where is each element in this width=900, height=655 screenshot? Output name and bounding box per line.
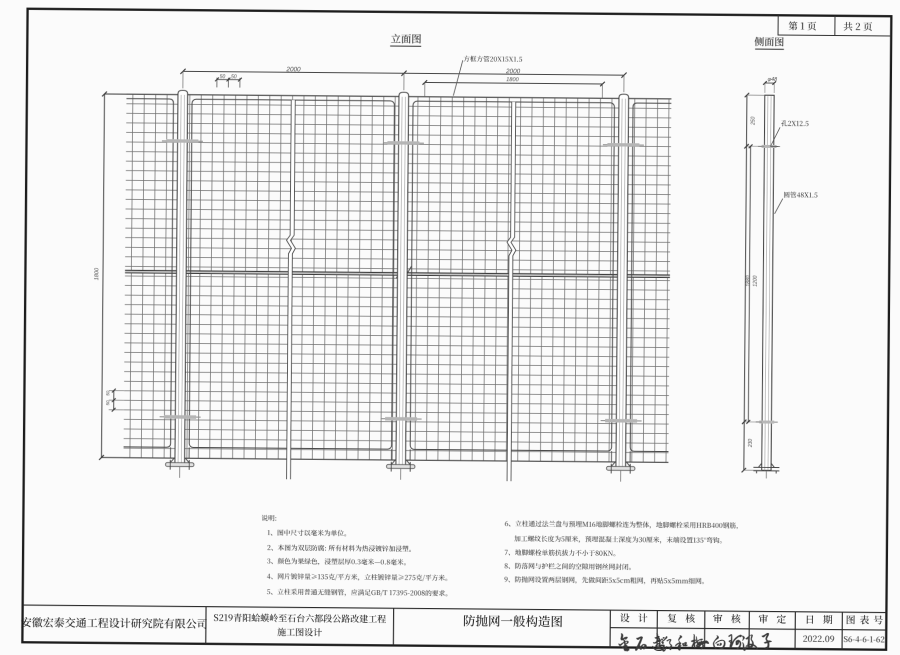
svg-text:50: 50 bbox=[105, 400, 110, 406]
svg-text:φ48: φ48 bbox=[767, 77, 777, 83]
svg-text:2000: 2000 bbox=[505, 68, 521, 75]
svg-text:50: 50 bbox=[231, 74, 237, 80]
svg-text:1800: 1800 bbox=[94, 267, 100, 280]
svg-text:1200: 1200 bbox=[753, 275, 759, 286]
svg-text:250: 250 bbox=[751, 116, 757, 126]
svg-text:50: 50 bbox=[105, 390, 110, 396]
svg-text:2000: 2000 bbox=[285, 66, 301, 73]
svg-text:1880: 1880 bbox=[746, 275, 752, 286]
svg-text:230: 230 bbox=[748, 439, 754, 449]
svg-text:1800: 1800 bbox=[506, 77, 519, 83]
svg-text:50: 50 bbox=[220, 74, 226, 80]
